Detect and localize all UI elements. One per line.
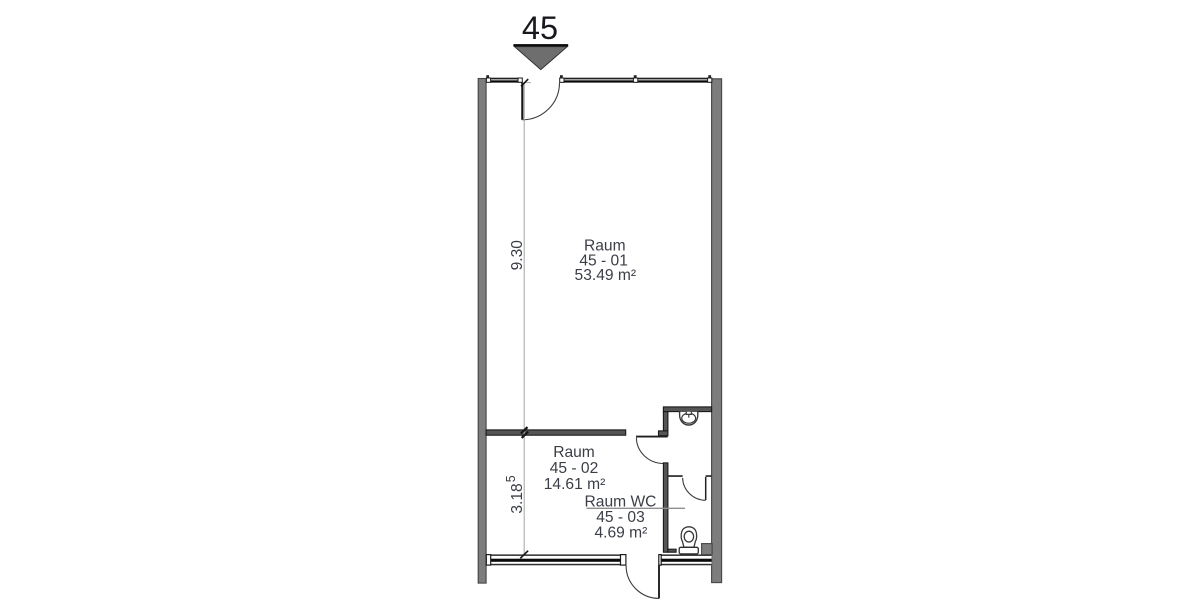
svg-text:45 - 02: 45 - 02: [550, 460, 599, 477]
svg-text:53.49 m²: 53.49 m²: [575, 267, 637, 284]
svg-text:3.18: 3.18: [509, 483, 526, 513]
svg-text:9.30: 9.30: [509, 240, 526, 271]
svg-text:Raum: Raum: [553, 444, 595, 461]
svg-text:4.69 m²: 4.69 m²: [594, 524, 647, 541]
svg-text:14.61 m²: 14.61 m²: [544, 476, 606, 493]
svg-text:45: 45: [522, 10, 558, 46]
svg-text:5: 5: [504, 475, 518, 482]
